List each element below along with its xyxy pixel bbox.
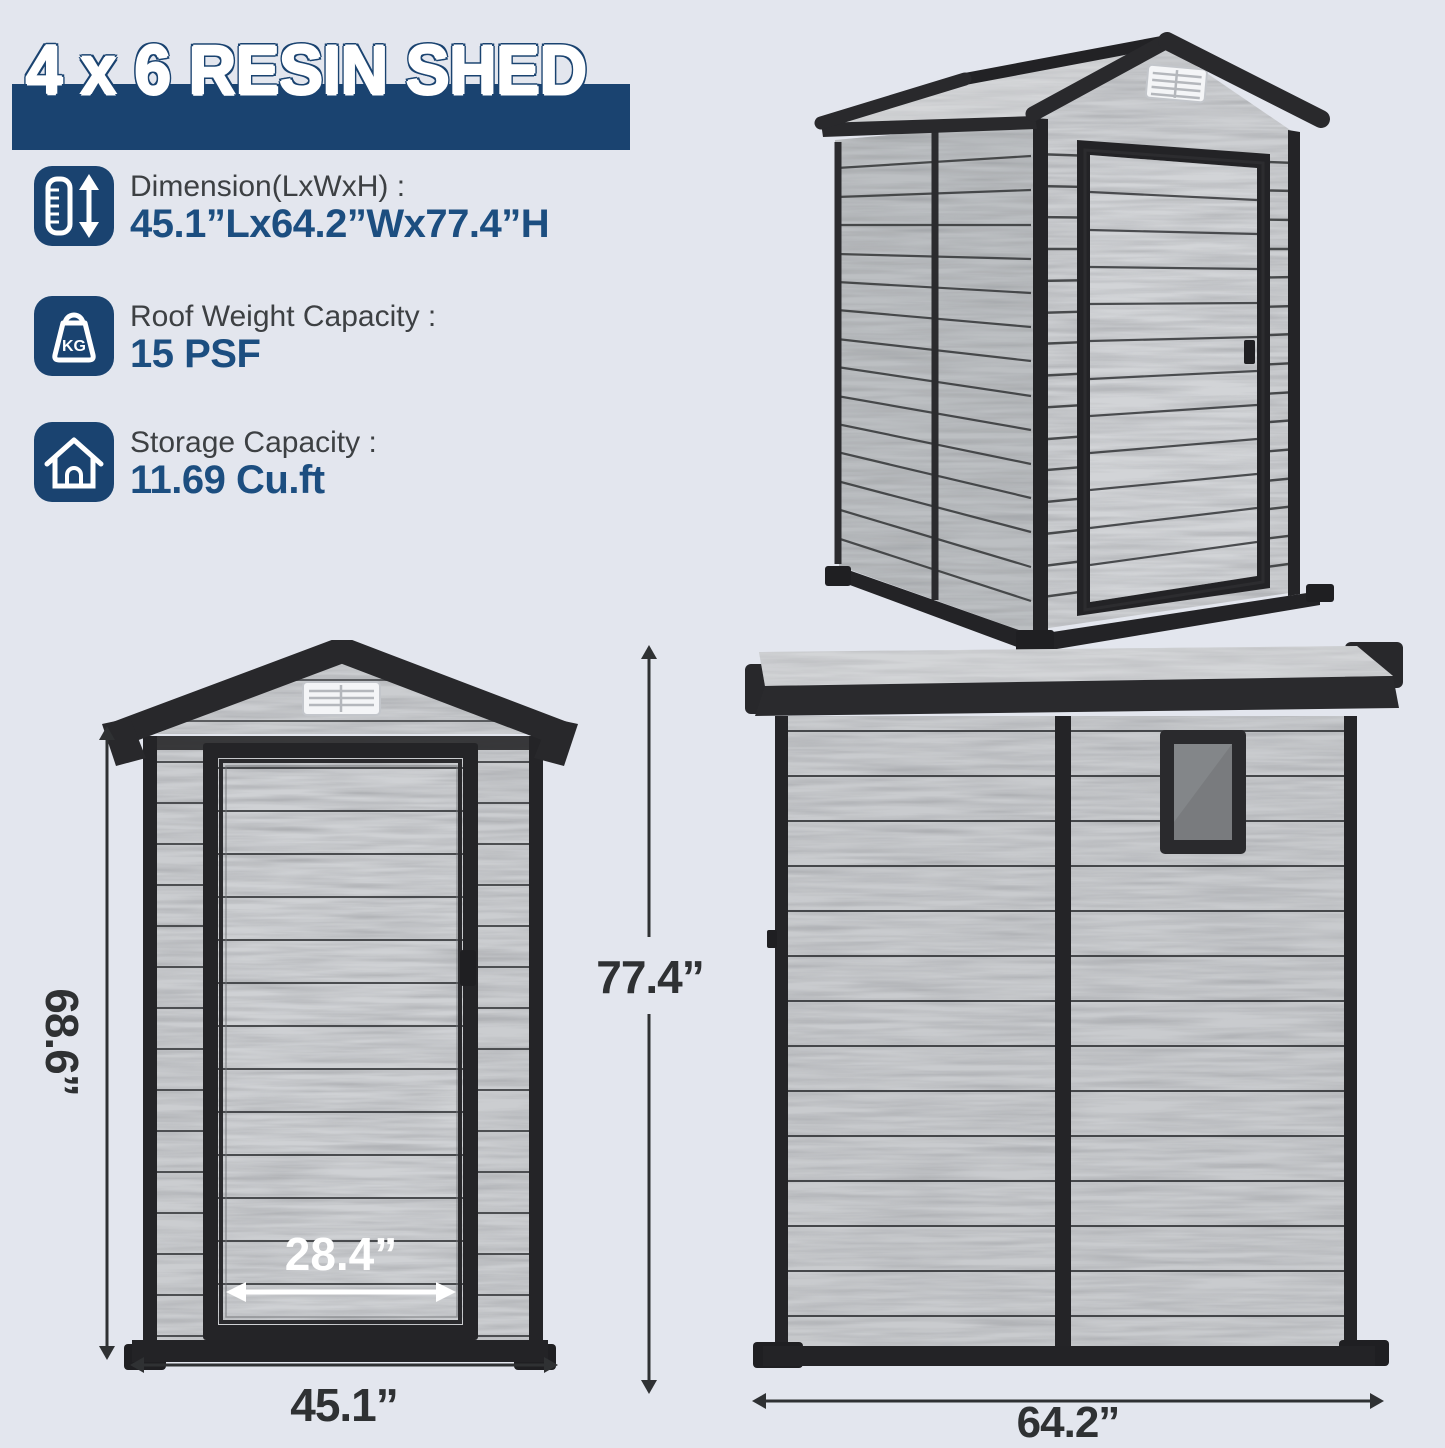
shed-3d-view xyxy=(730,10,1440,655)
side-latch xyxy=(767,930,777,948)
corner-post-3d xyxy=(1033,118,1048,635)
spec-label: Storage Capacity : xyxy=(130,426,377,460)
side-width-label: 64.2” xyxy=(968,1398,1168,1448)
wall-height-label: 68.6” xyxy=(38,957,86,1127)
side-roof xyxy=(745,642,1403,716)
door-handle-3d xyxy=(1244,340,1255,364)
storage-house-icon xyxy=(34,422,114,502)
overall-height-arrow xyxy=(636,642,662,1397)
page-title: 4 x 6 RESIN SHED xyxy=(26,30,621,110)
shed-side-view xyxy=(745,642,1405,1377)
shed-3d-side-wall xyxy=(835,122,1033,635)
roof-weight-icon: KG xyxy=(34,296,114,376)
door-width-label: 28.4” xyxy=(285,1228,398,1280)
spec-label: Roof Weight Capacity : xyxy=(130,300,436,334)
height-dimension-icon xyxy=(34,166,114,246)
overall-height-label: 77.4” xyxy=(575,950,725,1004)
front-width-label: 45.1” xyxy=(244,1378,444,1432)
spec-value: 15 PSF xyxy=(130,332,260,377)
spec-value: 45.1”Lx64.2”Wx77.4”H xyxy=(130,202,549,247)
right-trim-3d xyxy=(1288,130,1300,596)
front-width-arrow xyxy=(126,1352,562,1378)
shed-front-view: 28.4” xyxy=(100,640,580,1380)
gable-vent-3d xyxy=(1146,65,1208,103)
shed-3d-door xyxy=(1077,140,1270,616)
kg-icon-text: KG xyxy=(62,338,86,355)
side-wall xyxy=(767,716,1357,1346)
side-window xyxy=(1160,730,1246,854)
door-handle-front xyxy=(460,950,476,986)
wall-height-arrow xyxy=(96,722,118,1364)
spec-value: 11.69 Cu.ft xyxy=(130,458,325,503)
spec-label: Dimension(LxWxH) : xyxy=(130,170,405,204)
